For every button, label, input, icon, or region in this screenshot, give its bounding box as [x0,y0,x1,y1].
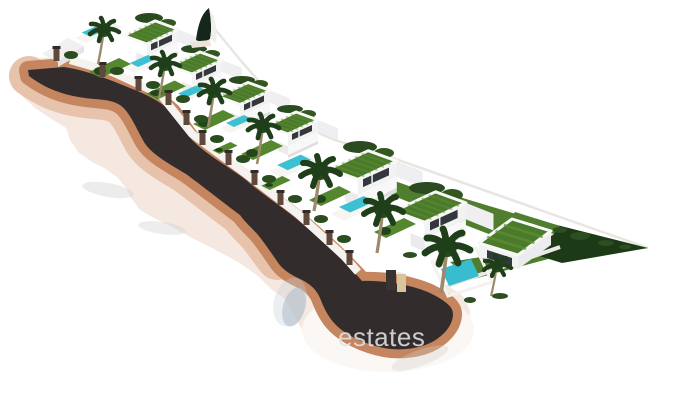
svg-text:estates: estates [338,322,425,352]
